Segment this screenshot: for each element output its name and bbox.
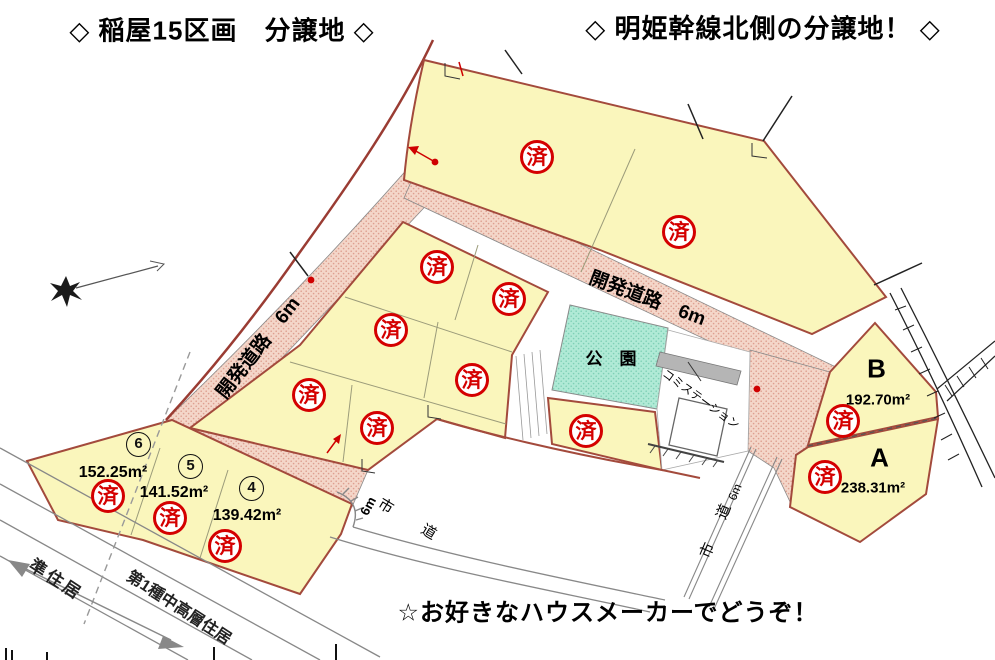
sold-badge: 済 [520, 140, 554, 174]
sold-badge: 済 [374, 313, 408, 347]
sold-badge: 済 [360, 411, 394, 445]
sold-badge: 済 [91, 479, 125, 513]
footer-note: ☆お好きなハウスメーカーでどうぞ！ [397, 593, 818, 628]
park-label: 公 園 [586, 345, 637, 370]
sold-badge: 済 [153, 501, 187, 535]
lotA-letter: A [870, 443, 890, 474]
sold-badge: 済 [208, 529, 242, 563]
lot5-area: 141.52m² [140, 484, 209, 502]
lot4-number: 4 [239, 476, 264, 501]
city-road-lines-right [684, 447, 782, 609]
sold-badge: 済 [292, 378, 326, 412]
lotA-area: 238.31m² [841, 480, 905, 497]
sold-badge: 済 [455, 363, 489, 397]
land-sale-flyer: ◇ 稲屋15区画 分譲地 ◇ ◇ 明姫幹線北側の分譲地！ ◇ ☆お好きなハウスメ… [0, 0, 995, 660]
lotB-area: 192.70m² [846, 392, 910, 409]
lotB-letter: B [867, 354, 887, 385]
sold-badge: 済 [662, 215, 696, 249]
site-plan-drawing [0, 0, 995, 660]
sold-badge: 済 [808, 460, 842, 494]
sold-badge: 済 [492, 282, 526, 316]
lot4-area: 139.42m² [213, 507, 282, 525]
lot5-number: 5 [178, 454, 203, 479]
sold-badge: 済 [420, 250, 454, 284]
benchmark-star-icon [50, 261, 164, 307]
sold-badge: 済 [826, 404, 860, 438]
title-left: ◇ 稲屋15区画 分譲地 ◇ [69, 11, 374, 48]
title-right: ◇ 明姫幹線北側の分譲地！ ◇ [585, 9, 940, 46]
narrow-strip-lines [516, 350, 547, 440]
lot6-number: 6 [126, 432, 151, 457]
sold-badge: 済 [569, 414, 603, 448]
